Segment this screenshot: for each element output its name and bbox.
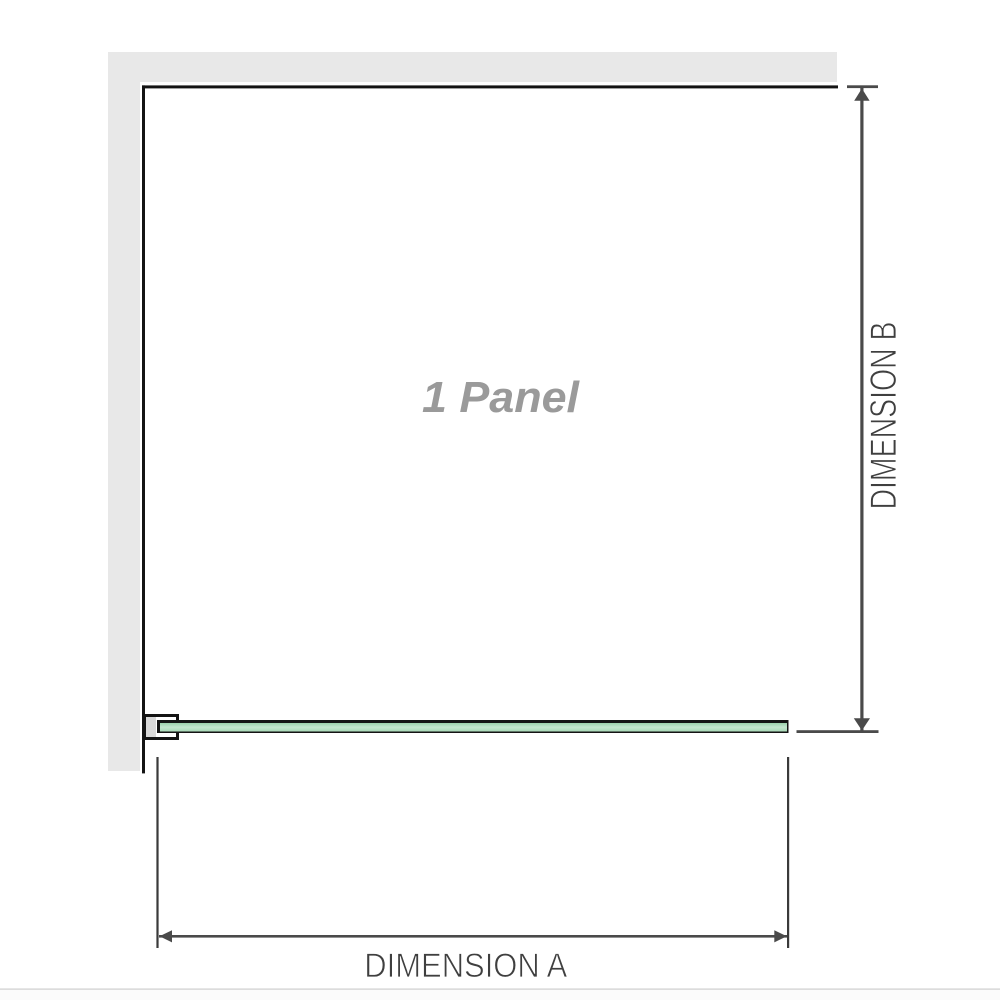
svg-text:DIMENSION B: DIMENSION B bbox=[863, 322, 904, 510]
svg-text:1 Panel: 1 Panel bbox=[422, 373, 580, 422]
svg-text:DIMENSION A: DIMENSION A bbox=[364, 947, 567, 985]
